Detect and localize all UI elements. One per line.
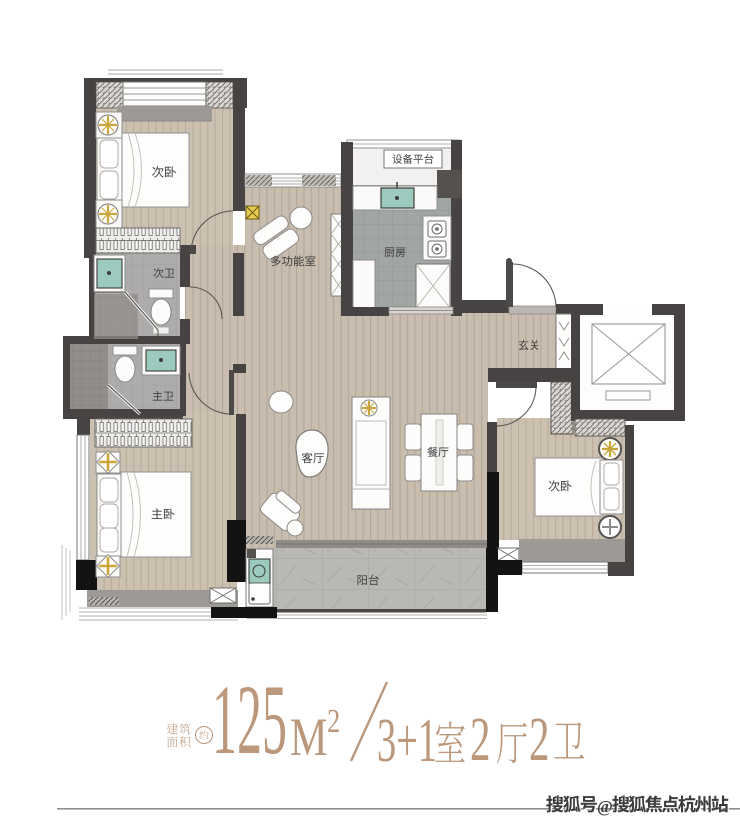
svg-text:M: M [290, 708, 327, 767]
svg-text:125: 125 [212, 666, 287, 776]
svg-text:3+1: 3+1 [377, 707, 437, 776]
svg-text:2: 2 [529, 706, 549, 774]
svg-text:2: 2 [470, 706, 490, 774]
svg-text:2: 2 [327, 702, 340, 740]
svg-text:@: @ [597, 797, 613, 816]
